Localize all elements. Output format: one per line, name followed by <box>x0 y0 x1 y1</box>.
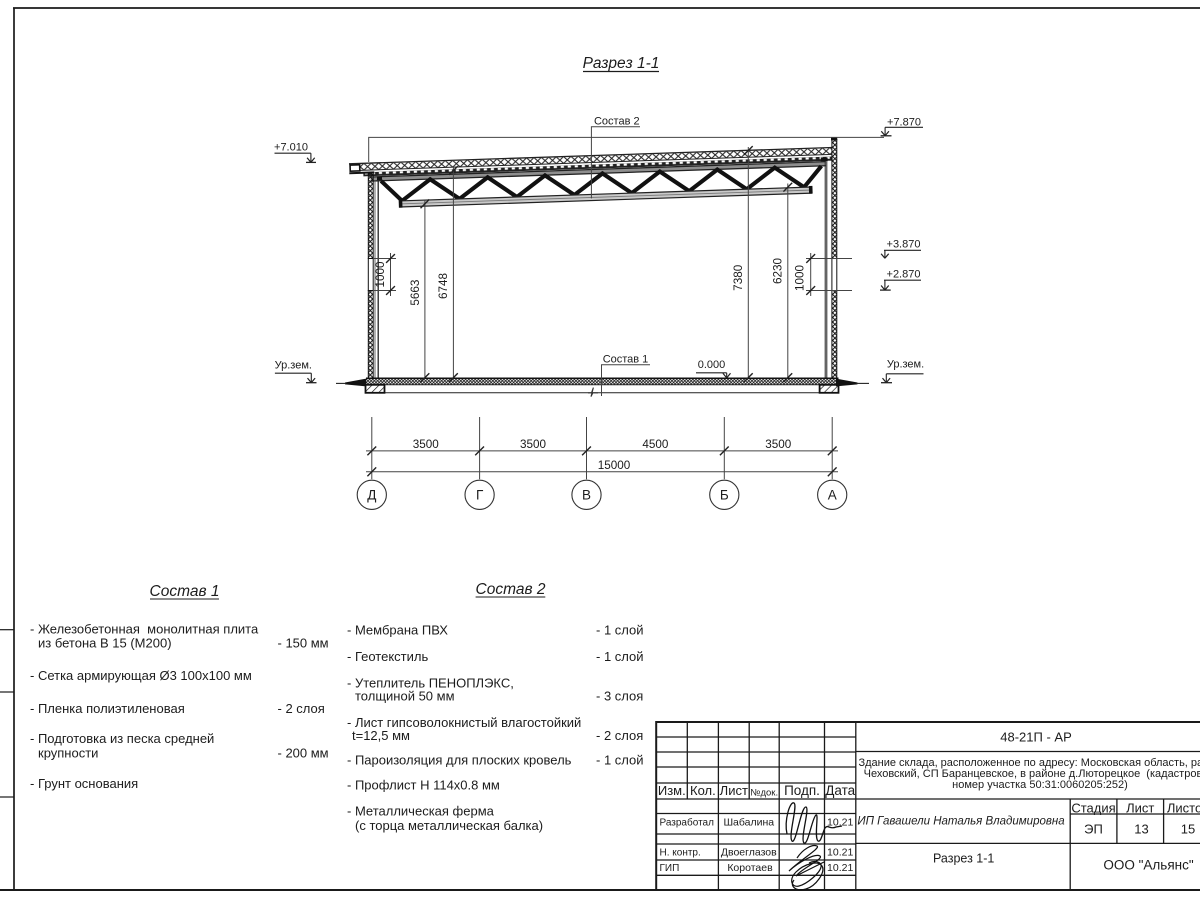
svg-text:Коротаев: Коротаев <box>727 862 773 874</box>
svg-text:- 1 слой: - 1 слой <box>596 623 644 638</box>
svg-text:- 3 слоя: - 3 слоя <box>596 689 643 704</box>
svg-text:1000: 1000 <box>374 261 387 288</box>
svg-text:5663: 5663 <box>409 280 422 306</box>
svg-text:- Мембрана ПВХ: - Мембрана ПВХ <box>347 623 448 638</box>
svg-text:- 1 слой: - 1 слой <box>596 649 644 664</box>
svg-text:Н. контр.: Н. контр. <box>660 848 701 859</box>
svg-text:А: А <box>828 488 837 503</box>
svg-text:Д: Д <box>367 488 376 503</box>
svg-text:- Железобетонная монолитная п: - Железобетонная монолитная плита <box>30 622 259 637</box>
svg-text:- Металлическая ферма: - Металлическая ферма <box>347 804 495 819</box>
svg-text:48-21П - АР: 48-21П - АР <box>1000 730 1072 745</box>
svg-text:Состав 2: Состав 2 <box>476 581 546 598</box>
svg-text:+7.870: +7.870 <box>887 116 921 128</box>
svg-text:15000: 15000 <box>598 459 631 472</box>
svg-text:Разрез 1-1: Разрез 1-1 <box>933 852 994 866</box>
svg-text:+3.870: +3.870 <box>887 238 921 250</box>
svg-text:15: 15 <box>1181 822 1195 837</box>
svg-text:+2.870: +2.870 <box>887 268 921 280</box>
svg-text:Состав 2: Состав 2 <box>594 116 640 128</box>
svg-text:Листов: Листов <box>1167 801 1200 816</box>
svg-text:- Геотекстиль: - Геотекстиль <box>347 649 428 664</box>
svg-text:6230: 6230 <box>772 258 785 285</box>
svg-text:Разрез 1-1: Разрез 1-1 <box>583 55 660 72</box>
svg-text:- Подготовка из песка средней: - Подготовка из песка средней <box>30 731 214 746</box>
svg-text:- 150 мм: - 150 мм <box>278 636 329 651</box>
svg-text:- Профлист Н 114х0.8 мм: - Профлист Н 114х0.8 мм <box>347 778 500 793</box>
svg-text:7380: 7380 <box>732 264 745 291</box>
svg-text:Изм.: Изм. <box>658 783 686 798</box>
svg-text:10.21: 10.21 <box>827 862 853 874</box>
svg-text:Дата: Дата <box>825 783 855 798</box>
svg-text:Состав 1: Состав 1 <box>150 583 220 600</box>
svg-text:Кол.: Кол. <box>690 783 716 798</box>
svg-text:Г: Г <box>476 488 484 503</box>
svg-text:№док.: №док. <box>750 788 778 799</box>
svg-text:толщиной 50 мм: толщиной 50 мм <box>355 689 455 704</box>
svg-text:ИП Гавашели Наталья Владимиров: ИП Гавашели Наталья Владимировна <box>857 816 1064 828</box>
svg-text:10.21: 10.21 <box>827 847 853 859</box>
svg-text:3500: 3500 <box>765 438 792 451</box>
svg-text:- Грунт основания: - Грунт основания <box>30 776 138 791</box>
svg-text:ЭП: ЭП <box>1084 822 1103 837</box>
svg-text:- 2 слоя: - 2 слоя <box>278 701 325 716</box>
svg-text:- Пароизоляция для плоских кро: - Пароизоляция для плоских кровель <box>347 753 572 768</box>
svg-text:Подп.: Подп. <box>784 783 820 798</box>
svg-text:6748: 6748 <box>437 273 450 299</box>
svg-text:крупности: крупности <box>38 745 98 760</box>
svg-text:Б: Б <box>720 488 729 503</box>
svg-text:(с торца металлическая балка): (с торца металлическая балка) <box>355 818 543 833</box>
svg-text:ООО "Альянс": ООО "Альянс" <box>1103 858 1193 873</box>
svg-text:- 1 слой: - 1 слой <box>596 753 644 768</box>
svg-text:13: 13 <box>1134 822 1148 837</box>
svg-text:+7.010: +7.010 <box>274 141 308 153</box>
svg-text:3500: 3500 <box>520 438 547 451</box>
svg-text:номер участка 50:31:0060205:25: номер участка 50:31:0060205:252) <box>952 779 1128 791</box>
svg-text:В: В <box>582 488 591 503</box>
svg-text:1000: 1000 <box>794 265 807 292</box>
svg-text:3500: 3500 <box>413 438 440 451</box>
svg-text:Лист: Лист <box>1126 801 1154 816</box>
svg-text:Шабалина: Шабалина <box>723 817 774 829</box>
svg-text:4500: 4500 <box>642 438 669 451</box>
svg-text:Разработал: Разработал <box>660 817 715 829</box>
svg-text:Стадия: Стадия <box>1071 801 1115 816</box>
svg-text:- Пленка полиэтиленовая: - Пленка полиэтиленовая <box>30 701 185 716</box>
svg-text:0.000: 0.000 <box>698 359 726 371</box>
svg-text:ГИП: ГИП <box>660 863 680 874</box>
svg-text:t=12,5 мм: t=12,5 мм <box>352 728 410 743</box>
svg-text:из бетона В 15 (М200): из бетона В 15 (М200) <box>38 636 172 651</box>
svg-text:Двоеглазов: Двоеглазов <box>721 847 777 859</box>
svg-text:Состав 1: Состав 1 <box>603 354 649 366</box>
svg-text:- 200 мм: - 200 мм <box>278 745 329 760</box>
svg-text:Ур.зем.: Ур.зем. <box>887 358 924 370</box>
svg-text:Ур.зем.: Ур.зем. <box>275 359 312 371</box>
svg-text:- Сетка армирующая Ø3 100х100: - Сетка армирующая Ø3 100х100 мм <box>30 668 252 683</box>
svg-text:Лист: Лист <box>720 783 748 798</box>
svg-text:- 2 слоя: - 2 слоя <box>596 728 643 743</box>
